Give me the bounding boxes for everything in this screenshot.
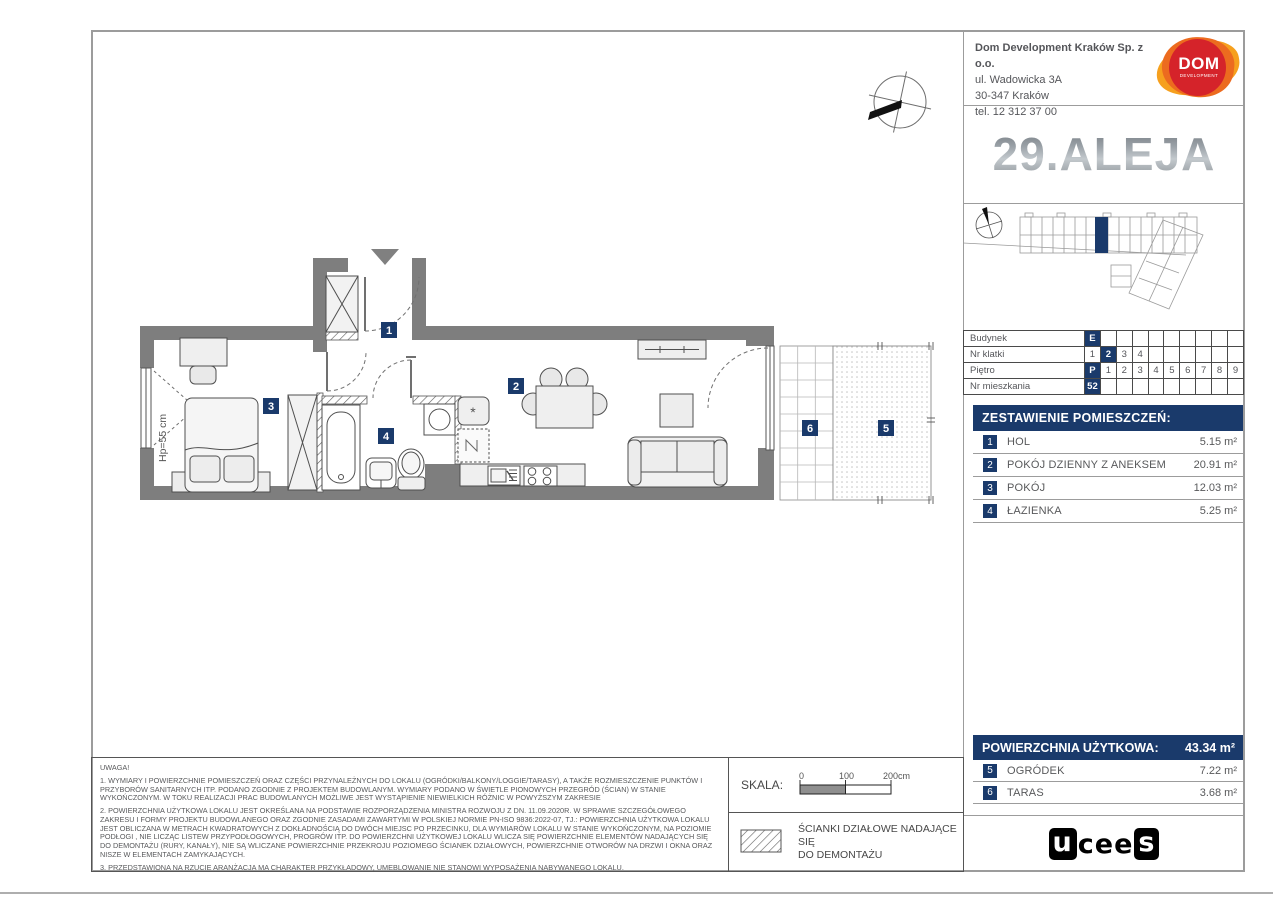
rooms-header: ZESTAWIENIE POMIESZCZEŃ: [973,405,1243,431]
room-area: 7.22 m² [1200,765,1243,777]
room-name: POKÓJ [1007,482,1194,494]
table-row: Nr klatki 1 2 34 [964,347,1244,363]
scale-label: SKALA: [741,778,783,792]
room-area: 5.25 m² [1200,505,1243,517]
scale-tick-100: 100 [839,771,854,781]
row-label: Piętro [964,363,1085,379]
room-number-badge: 5 [983,764,997,778]
site-plan-thumbnail [963,203,1245,330]
ucees-letter-s: s [1134,828,1159,860]
legend-line2: DO DEMONTAŻU [798,849,963,862]
usable-area-value: 43.34 m² [1185,741,1235,755]
ucees-logo: u cee s [1048,828,1161,860]
notes-title: UWAGA! [100,764,720,773]
room-number-badge: 4 [983,504,997,518]
site-plan-unit-highlight [1095,217,1108,253]
room-row-pokoj-dzienny: 2 POKÓJ DZIENNY Z ANEKSEM 20.91 m² [973,454,1243,477]
notes-paragraph-1: 1. WYMIARY I POWIERZCHNIE POMIESZCZEŃ OR… [100,777,720,803]
usable-area-header: POWIERZCHNIA UŻYTKOWA: 43.34 m² [973,735,1243,760]
room-row-lazienka: 4 ŁAZIENKA 5.25 m² [973,500,1243,523]
room-area: 3.68 m² [1200,787,1243,799]
room-row-pokoj: 3 POKÓJ 12.03 m² [973,477,1243,500]
company-address1: ul. Wadowicka 3A [975,72,1155,88]
table-row: Piętro P 12 34 56 78 9 [964,363,1244,379]
room-number-badge: 1 [983,435,997,449]
page-bottom-rule [0,892,1273,894]
room-number-badge: 2 [983,458,997,472]
legend-panel: ŚCIANKI DZIAŁOWE NADAJĄCE SIĘ DO DEMONTA… [728,812,964,872]
notes-paragraph-3: 3. PRZEDSTAWIONA NA RZUCIE ARANŻACJA MA … [100,864,720,873]
legal-notes: UWAGA! 1. WYMIARY I POWIERZCHNIE POMIESZ… [91,757,729,872]
scale-tick-0: 0 [799,771,804,781]
row-label: Nr mieszkania [964,379,1085,395]
table-row: Budynek E [964,331,1244,347]
extra-row-taras: 6 TARAS 3.68 m² [973,782,1243,804]
legend-text: ŚCIANKI DZIAŁOWE NADAJĄCE SIĘ DO DEMONTA… [798,823,963,862]
cell-pietro: P [1085,363,1101,379]
extra-row-ogrodek: 5 OGRÓDEK 7.22 m² [973,760,1243,782]
cell-budynek: E [1085,331,1101,347]
project-logo: 29.ALEJA [963,105,1245,203]
legend-line1: ŚCIANKI DZIAŁOWE NADAJĄCE SIĘ [798,823,963,849]
row-label: Budynek [964,331,1085,347]
company-name: Dom Development Kraków Sp. z o.o. [975,40,1155,72]
room-row-hol: 1 HOL 5.15 m² [973,431,1243,454]
dom-logo-text: DOM [1156,54,1242,74]
room-name: HOL [1007,436,1200,448]
room-number-badge: 3 [983,481,997,495]
company-address2: 30-347 Kraków [975,88,1155,104]
table-row: Nr mieszkania 52 [964,379,1244,395]
room-name: OGRÓDEK [1007,765,1200,777]
room-area: 12.03 m² [1194,482,1243,494]
cell-klatka: 2 [1100,347,1116,363]
scale-bar: 0 100 200cm [791,768,951,802]
ucees-letters-cee: cee [1078,829,1134,860]
room-area: 20.91 m² [1194,459,1243,471]
floorplan-sheet: * [0,0,1273,900]
scale-panel: SKALA: 0 100 200cm [728,757,964,813]
room-name: TARAS [1007,787,1200,799]
cell-mieszkanie: 52 [1085,379,1101,395]
ucees-logo-panel: u cee s [964,815,1244,872]
row-label: Nr klatki [964,347,1085,363]
demountable-wall-swatch [740,829,788,855]
scale-tick-200: 200cm [883,771,910,781]
notes-paragraph-2: 2. POWIERZCHNIA UŻYTKOWA LOKALU JEST OKR… [100,807,720,860]
room-area: 5.15 m² [1200,436,1243,448]
room-number-badge: 6 [983,786,997,800]
usable-area-label: POWIERZCHNIA UŻYTKOWA: [982,741,1159,755]
dom-development-logo: DOM DEVELOPMENT [1156,34,1242,102]
unit-info-table: Budynek E Nr klatki 1 2 34 Piętro P 12 3… [963,330,1244,395]
dom-logo-subtext: DEVELOPMENT [1156,73,1242,78]
room-name: ŁAZIENKA [1007,505,1200,517]
ucees-letter-u: u [1049,828,1077,860]
room-name: POKÓJ DZIENNY Z ANEKSEM [1007,459,1194,471]
